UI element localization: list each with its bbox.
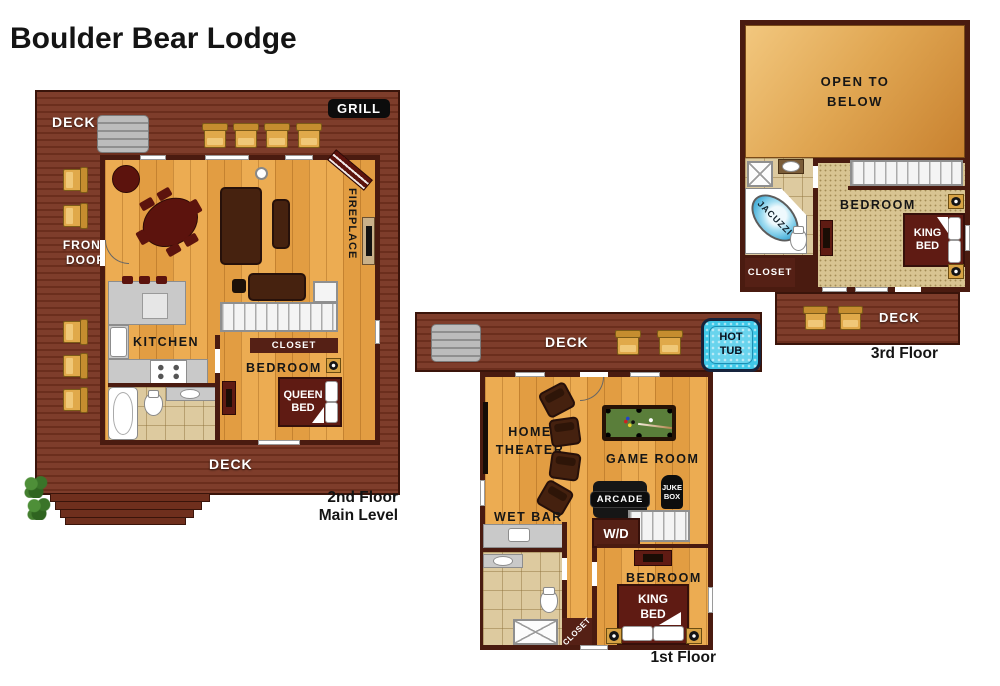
floor3-open-to-below-label: OPEN TO BELOW — [816, 72, 894, 111]
stair-landing — [313, 281, 338, 303]
projection-screen-icon — [483, 402, 488, 474]
floor1-caption: 1st Floor — [638, 649, 716, 667]
window — [965, 225, 970, 251]
window — [258, 440, 300, 445]
deck-chair-icon — [63, 321, 87, 343]
deck-chair-icon — [840, 307, 861, 330]
deck-chair-icon — [659, 331, 681, 355]
firebox — [366, 226, 372, 256]
window — [708, 587, 713, 613]
cue-stick-icon — [638, 423, 672, 429]
bathroom-door-opening — [562, 558, 567, 580]
bar-stool-icon — [139, 276, 150, 284]
window — [205, 155, 249, 160]
stairs-down — [220, 302, 338, 332]
floor1-interior: HOME THEATER GAME ROOM ARCADE JUKE BOX W… — [480, 372, 713, 650]
floor1-juke-box-label: JUKE BOX — [662, 483, 682, 501]
grill-icon — [431, 324, 481, 362]
queen-bed: QUEEN BED — [278, 377, 342, 427]
floor2-grill-label: GRILL — [328, 99, 390, 118]
floor3-closet: CLOSET — [745, 258, 795, 287]
floor3-caption: 3rd Floor — [856, 345, 938, 363]
pillow — [653, 626, 684, 641]
floor3-deck-label: DECK — [879, 310, 920, 325]
bathroom-sink-icon — [493, 556, 513, 566]
king-bed: KING BED — [903, 213, 965, 267]
dresser-icon — [634, 550, 672, 566]
floor1-bedroom-label: BEDROOM — [626, 571, 702, 585]
bathtub-icon — [108, 387, 138, 440]
shower-icon — [747, 161, 773, 187]
kitchen-sink-icon — [110, 327, 127, 357]
deck-chair-icon — [63, 389, 87, 411]
floor2-house: FIREPLACE CLOSET KITCHEN BEDR — [100, 155, 380, 445]
floor3-closet-label: CLOSET — [748, 267, 793, 278]
floor2-caption: 2nd Floor Main Level — [285, 489, 398, 525]
speaker-icon — [606, 628, 622, 644]
bedroom-door-opening — [592, 562, 597, 586]
window — [630, 372, 660, 377]
speaker-icon — [948, 264, 964, 279]
floor2-closet-label: CLOSET — [272, 340, 317, 351]
floor2-fireplace-label: FIREPLACE — [346, 188, 358, 308]
floor1-deck: DECK HOT TUB — [415, 312, 762, 372]
window — [480, 480, 485, 506]
deck-chair-icon — [266, 124, 288, 148]
kitchen-island — [142, 293, 168, 319]
deck-chair-icon — [204, 124, 226, 148]
loveseat-icon — [248, 273, 306, 301]
floor1-game-room-label: GAME ROOM — [606, 452, 699, 466]
dresser-icon — [820, 220, 833, 256]
deck-chair-icon — [63, 169, 87, 191]
pillow — [325, 381, 338, 402]
window — [375, 320, 380, 344]
bench-seat-icon — [272, 199, 290, 249]
floor1-closet-label: CLOSET — [561, 616, 592, 647]
bedroom-wall-h — [597, 544, 708, 548]
floor1-king-bed-label: KING BED — [628, 592, 678, 621]
floor2-bedroom-label: BEDROOM — [246, 361, 322, 375]
floor-plan-canvas: Boulder Bear Lodge DECK GRILL FRONT DOOR… — [0, 0, 1000, 686]
pillow — [622, 626, 653, 641]
bathroom-sink-icon — [180, 389, 200, 399]
pool-table-icon — [602, 405, 676, 441]
page-title: Boulder Bear Lodge — [10, 22, 297, 56]
deck-chair-icon — [298, 124, 320, 148]
floor3-deck: DECK — [775, 292, 960, 345]
floor2-deck-bottom-label: DECK — [209, 456, 253, 472]
entry-steps — [65, 517, 186, 525]
bedroom-door-opening — [215, 349, 220, 373]
grill-icon — [97, 115, 149, 153]
floor3-interior: OPEN TO BELOW JACUZZI CLOSET BEDROOM KIN… — [740, 20, 970, 292]
hot-tub: HOT TUB — [701, 318, 761, 372]
floor1-wd-label: W/D — [603, 526, 628, 541]
toilet-icon — [144, 393, 163, 416]
toilet-icon — [540, 590, 558, 613]
stove-icon — [150, 360, 187, 384]
floor2-caption-line1: 2nd Floor — [285, 489, 398, 507]
side-table-icon — [232, 279, 246, 293]
floor2-kitchen-label: KITCHEN — [133, 335, 199, 349]
window — [285, 155, 313, 160]
deck-chair-icon — [63, 355, 87, 377]
fireplace-icon — [362, 217, 375, 265]
deck-chair-icon — [617, 331, 639, 355]
floor2-deck-top-label: DECK — [52, 114, 96, 130]
stairs-down — [850, 160, 963, 186]
plant-icon — [27, 498, 51, 520]
speaker-icon — [948, 194, 964, 209]
floor1-closet: CLOSET — [562, 618, 592, 645]
shower-icon — [513, 619, 558, 645]
window — [140, 155, 166, 160]
round-table-icon — [112, 165, 140, 193]
bathroom-sink-icon — [782, 161, 800, 172]
pillow — [948, 240, 961, 263]
floor3-bedroom-label: BEDROOM — [840, 198, 916, 212]
deck-chair-icon — [235, 124, 257, 148]
floor1-deck-label: DECK — [545, 334, 589, 350]
floor2-queen-bed-label: QUEEN BED — [280, 389, 326, 415]
deck-chair-icon — [805, 307, 826, 330]
pillow — [948, 217, 961, 240]
plant-icon — [24, 476, 48, 498]
deck-chair-icon — [63, 205, 87, 227]
floor1-wet-bar-label: WET BAR — [494, 510, 563, 524]
ceiling-light-icon — [255, 167, 268, 180]
juke-box: JUKE BOX — [661, 475, 683, 509]
bar-stool-icon — [156, 276, 167, 284]
sofa-icon — [220, 187, 262, 265]
recliner-icon — [548, 416, 582, 448]
king-bed: KING BED — [617, 584, 689, 645]
recliner-icon — [548, 450, 582, 482]
window — [580, 645, 608, 650]
front-door-opening — [100, 240, 105, 266]
speaker-icon — [686, 628, 702, 644]
floor2-caption-line2: Main Level — [285, 507, 398, 525]
stairs-wall — [848, 186, 965, 190]
toilet-icon — [790, 229, 807, 251]
floor1-hot-tub-label: HOT TUB — [714, 331, 748, 359]
floor2-closet: CLOSET — [250, 338, 338, 353]
wet-bar-sink-icon — [508, 528, 530, 542]
pillow — [325, 402, 338, 423]
open-to-below-area: OPEN TO BELOW — [745, 25, 965, 158]
window — [515, 372, 545, 377]
floor1-arcade-label: ARCADE — [590, 491, 651, 508]
speaker-icon — [326, 358, 341, 373]
floor3-king-bed-label: KING BED — [906, 227, 950, 253]
bar-stool-icon — [122, 276, 133, 284]
dresser-icon — [222, 381, 236, 415]
